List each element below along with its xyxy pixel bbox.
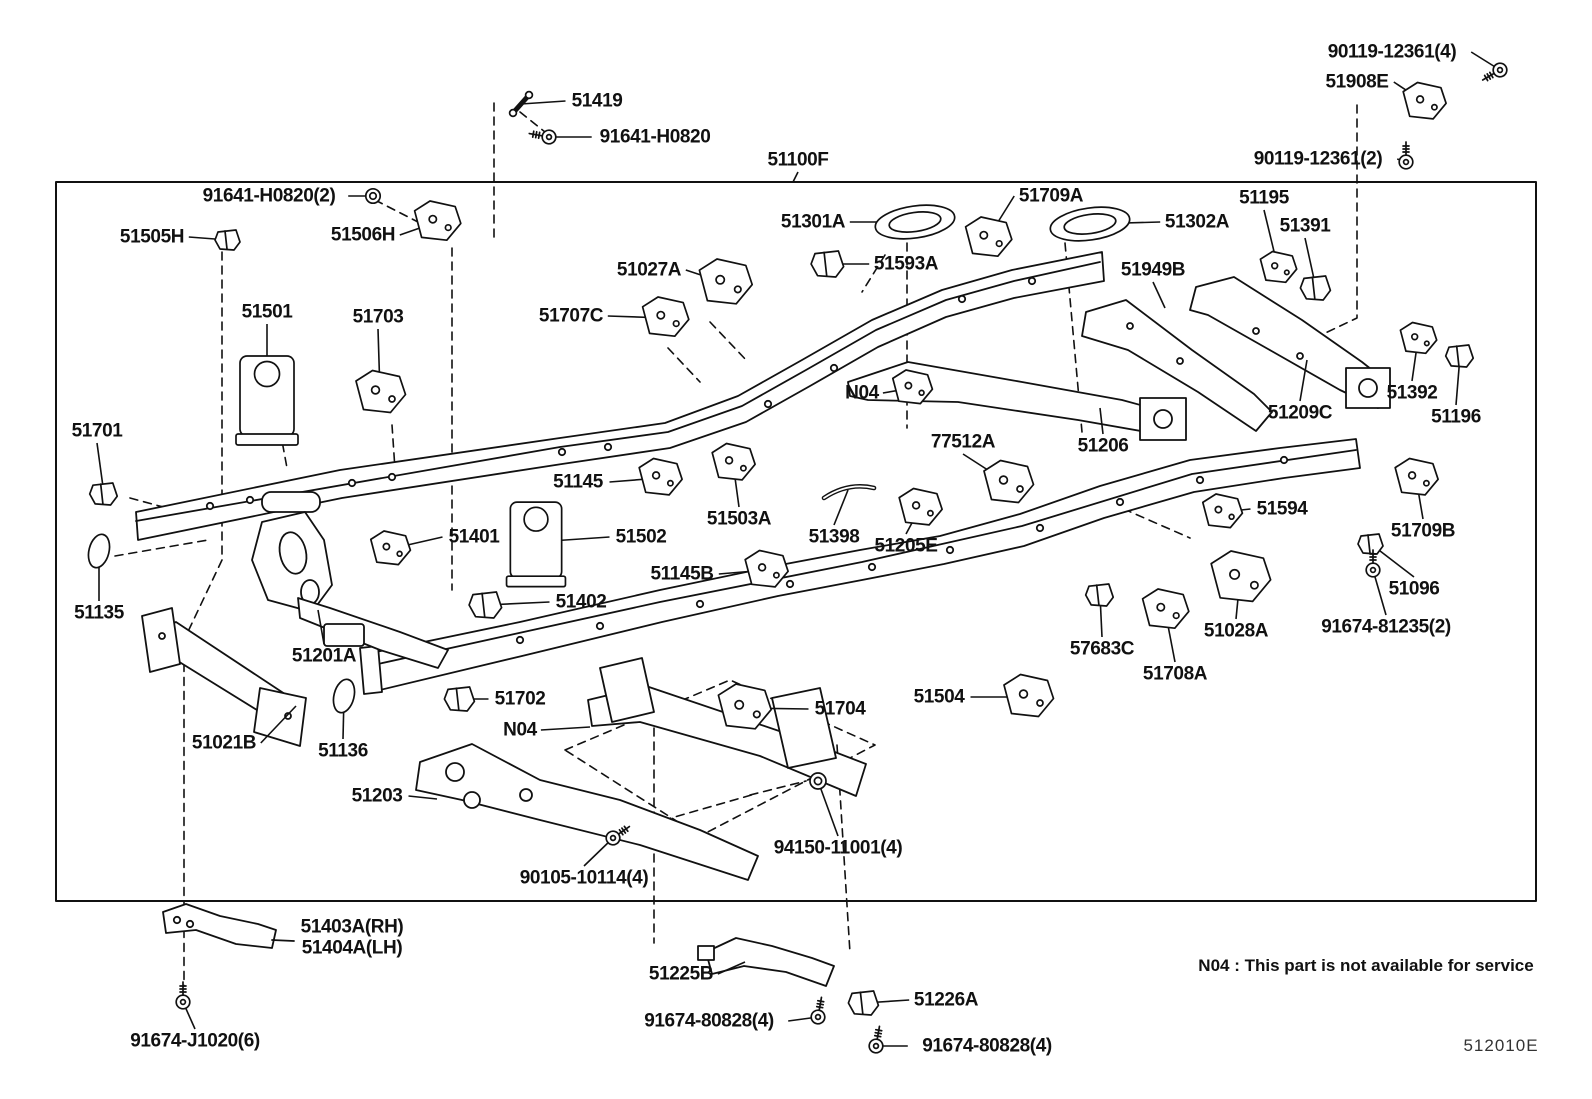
part-label-51145: 51145: [553, 473, 603, 492]
part-label-51708a: 51708A: [1143, 665, 1207, 684]
part-label-51226a: 51226A: [914, 991, 978, 1010]
part-label-51096: 51096: [1389, 580, 1440, 599]
part-label-91674-80828-4-b: 91674-80828(4): [922, 1037, 1052, 1056]
part-label-51404a-lh: 51404A(LH): [302, 939, 403, 958]
part-label-51709b: 51709B: [1391, 522, 1455, 541]
part-label-51505h: 51505H: [120, 228, 184, 247]
part-label-51021b: 51021B: [192, 734, 256, 753]
part-label-51506h: 51506H: [331, 226, 395, 245]
part-label-n04-2: N04: [503, 721, 537, 740]
part-label-90119-12361-4: 90119-12361(4): [1328, 43, 1457, 62]
part-label-51949b: 51949B: [1121, 261, 1185, 280]
part-label-51392: 51392: [1387, 384, 1438, 403]
part-label-91641-h0820-2: 91641-H0820(2): [203, 187, 336, 206]
part-label-51225b: 51225B: [649, 965, 713, 984]
part-label-51908e: 51908E: [1325, 73, 1388, 92]
part-label-51593a: 51593A: [874, 255, 938, 274]
part-label-51135: 51135: [74, 604, 124, 623]
brace-51403a: [163, 904, 276, 948]
figure-code: 512010E: [1463, 1036, 1538, 1056]
part-label-57683c: 57683C: [1070, 640, 1134, 659]
part-label-77512a: 77512A: [931, 433, 995, 452]
arm-51225b: [706, 938, 834, 986]
part-label-51704: 51704: [815, 700, 866, 719]
part-label-51701: 51701: [72, 422, 123, 441]
part-label-51028a: 51028A: [1204, 622, 1268, 641]
part-label-51136: 51136: [318, 742, 368, 761]
part-label-51709a: 51709A: [1019, 187, 1083, 206]
part-label-51502: 51502: [616, 528, 667, 547]
part-label-51301a: 51301A: [781, 213, 845, 232]
part-label-91674-81235-2: 91674-81235(2): [1321, 618, 1451, 637]
part-label-51594: 51594: [1257, 500, 1308, 519]
part-label-51201a: 51201A: [292, 647, 356, 666]
part-label-91641-h0820: 91641-H0820: [600, 128, 711, 147]
part-label-51707c: 51707C: [539, 307, 603, 326]
part-label-51504: 51504: [914, 688, 965, 707]
part-label-90119-12361-2: 90119-12361(2): [1254, 150, 1383, 169]
part-label-51403a-rh: 51403A(RH): [301, 918, 404, 937]
crossmember-51203: [416, 744, 758, 880]
part-label-51703: 51703: [353, 308, 404, 327]
service-note: N04 : This part is not available for ser…: [1198, 956, 1533, 976]
part-label-91674-80828-4-a: 91674-80828(4): [644, 1012, 774, 1031]
parts-diagram-page: 5141991641-H082051100F90119-12361(4)5190…: [0, 0, 1592, 1099]
part-label-51206: 51206: [1078, 437, 1129, 456]
part-label-51209c: 51209C: [1268, 404, 1332, 423]
part-label-90105-10114-4: 90105-10114(4): [520, 869, 649, 888]
part-label-51419: 51419: [572, 92, 623, 111]
part-label-51196: 51196: [1431, 408, 1481, 427]
part-label-51398: 51398: [809, 528, 860, 547]
crossmember-51206: [848, 362, 1166, 434]
part-label-51145b: 51145B: [650, 565, 713, 584]
part-label-51503a: 51503A: [707, 510, 771, 529]
part-label-51391: 51391: [1280, 217, 1331, 236]
part-label-51402: 51402: [556, 593, 607, 612]
part-label-51195: 51195: [1239, 189, 1289, 208]
part-label-51702: 51702: [495, 690, 546, 709]
part-label-51100f: 51100F: [768, 151, 829, 170]
part-label-51027a: 51027A: [617, 261, 681, 280]
part-label-91674-j1020-6: 91674-J1020(6): [130, 1032, 260, 1051]
part-label-51302a: 51302A: [1165, 213, 1229, 232]
part-label-51501: 51501: [242, 303, 293, 322]
part-label-51203: 51203: [352, 787, 403, 806]
part-label-51401: 51401: [449, 528, 500, 547]
part-label-51205e: 51205E: [874, 537, 937, 556]
part-label-n04-1: N04: [845, 384, 879, 403]
part-label-94150-11001-4: 94150-11001(4): [774, 839, 903, 858]
